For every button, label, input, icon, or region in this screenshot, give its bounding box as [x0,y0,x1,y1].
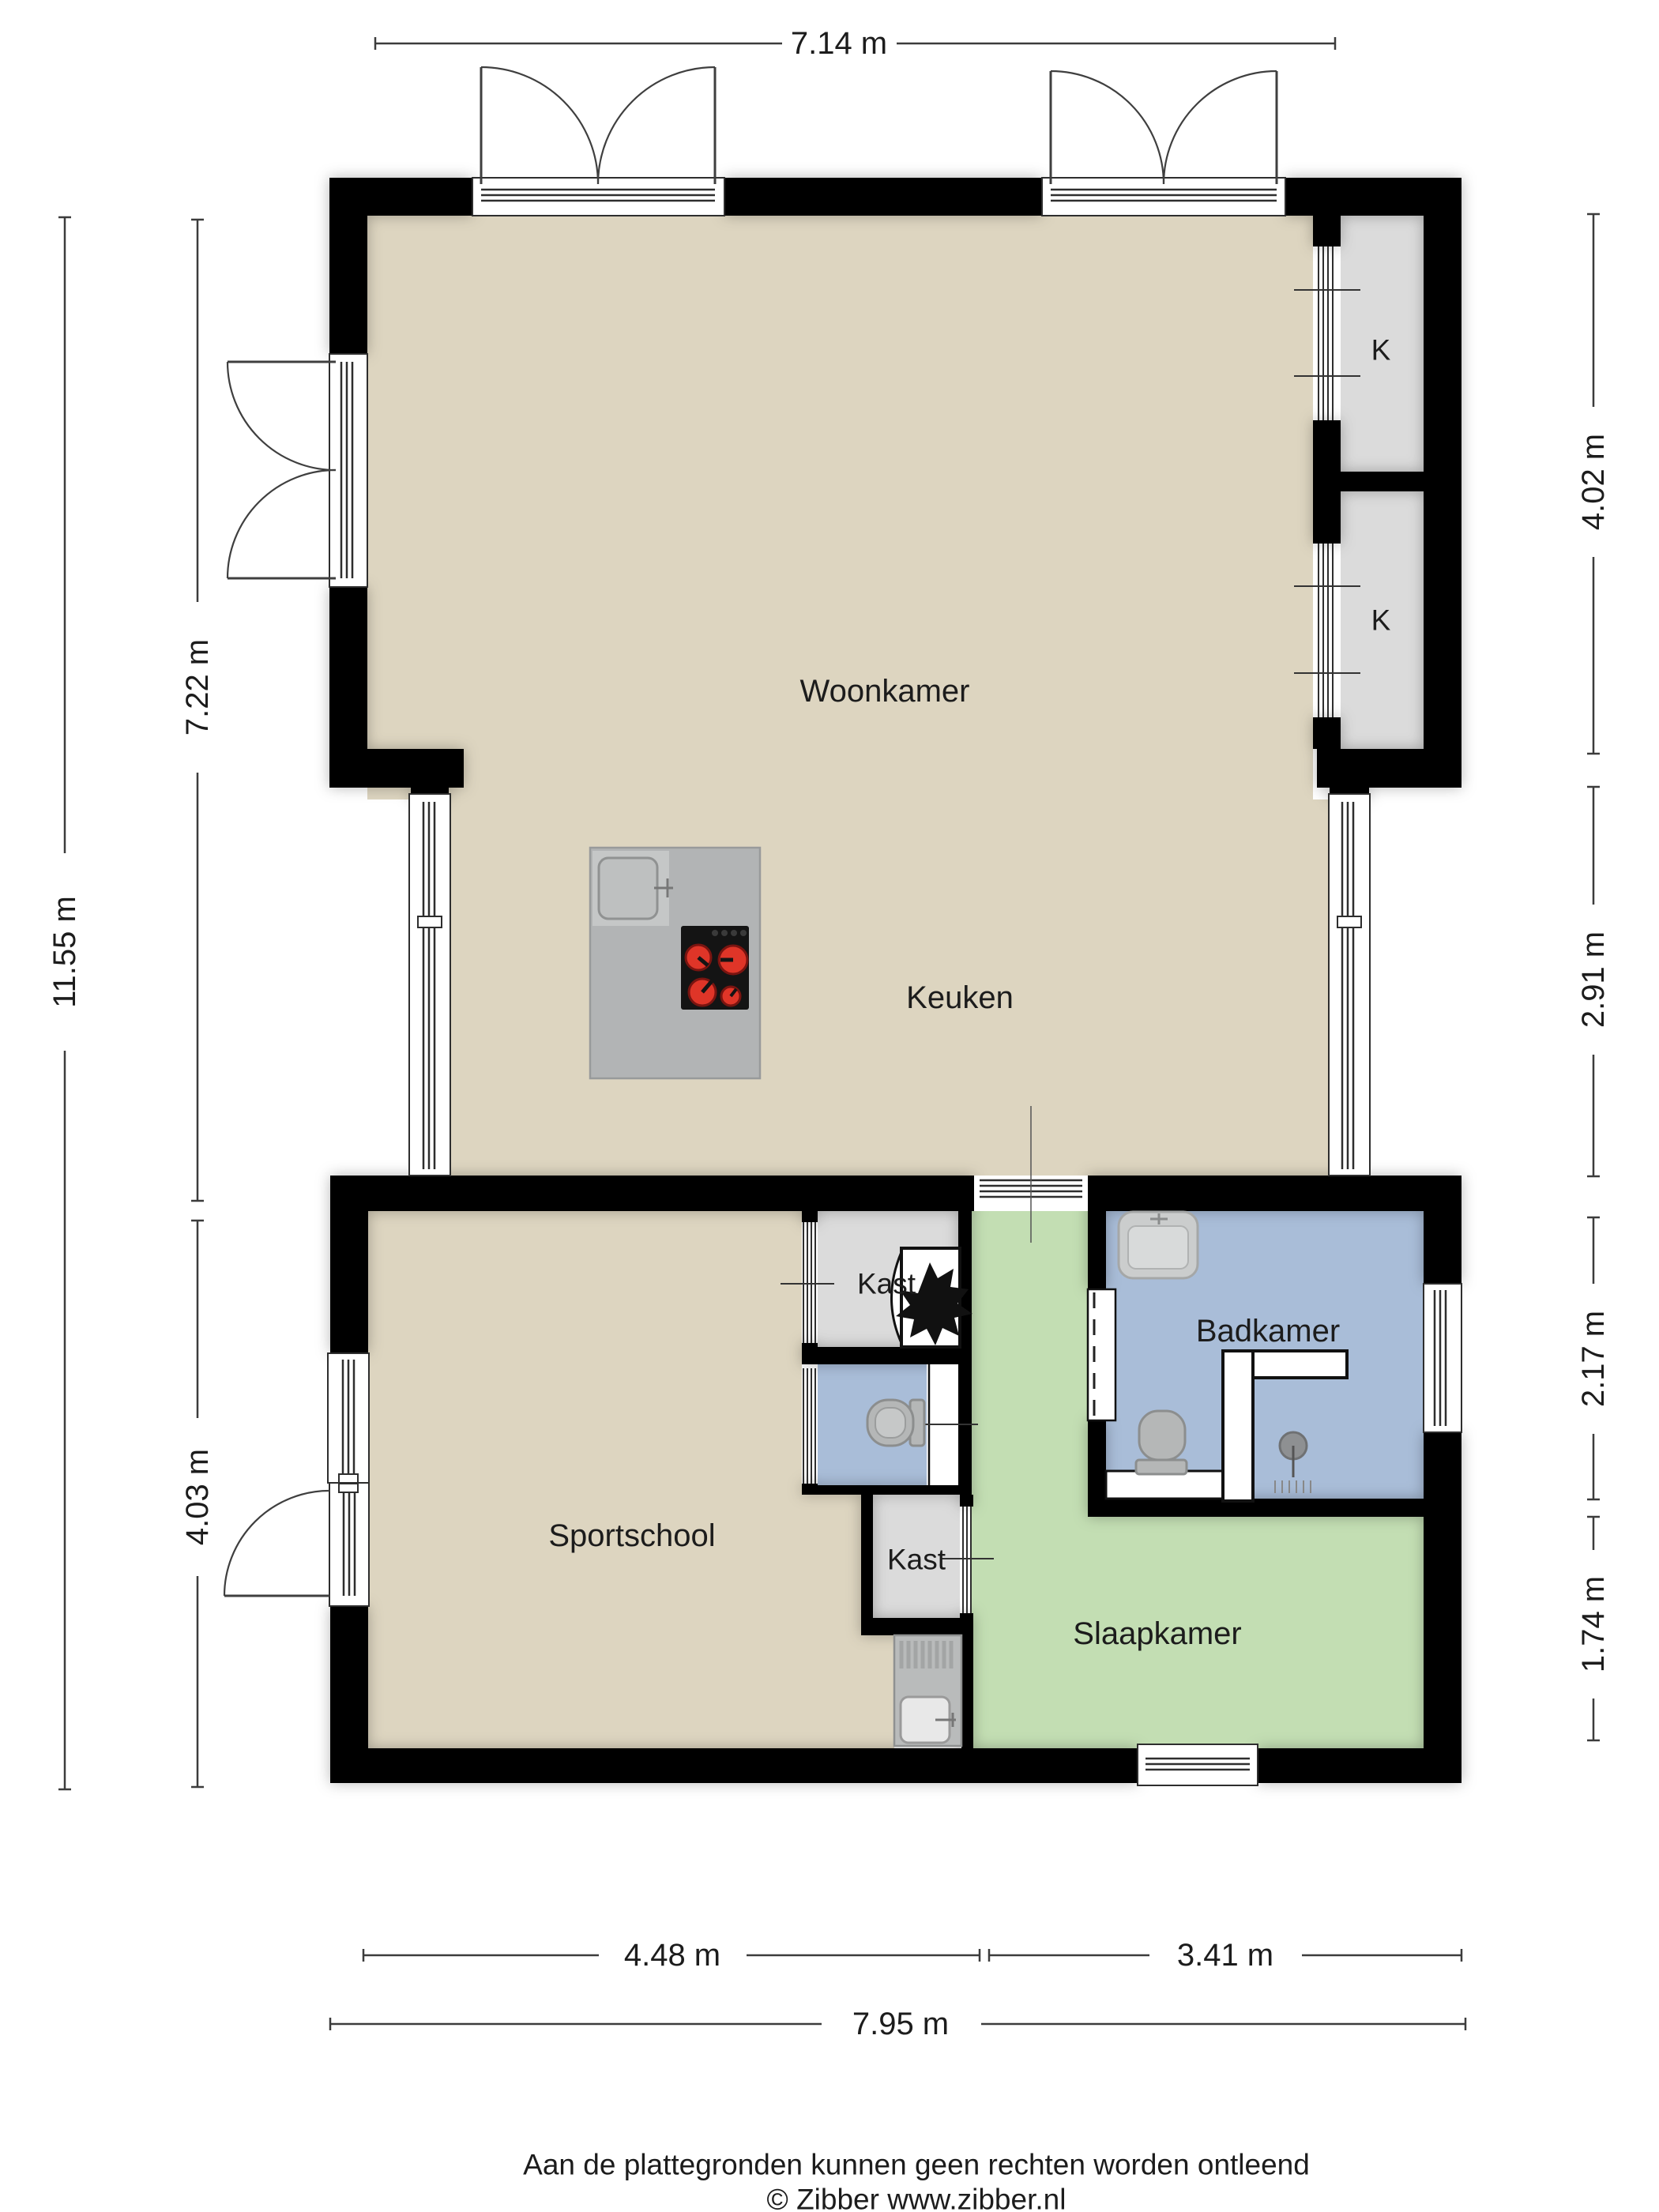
french-door-left [228,354,367,587]
french-door-top-right [1042,71,1285,216]
sink-cabinet [894,1635,961,1746]
dim-left-lower: 4.03 m [180,1221,215,1787]
dim-left-upper: 7.22 m [180,220,215,1201]
keuken-floor [450,799,1329,1176]
sportschool-floor [368,1211,802,1748]
dim-right-bath: 2.17 m [1576,1217,1611,1499]
sportschool-door [224,1483,369,1606]
room-label-badkamer: Badkamer [1196,1314,1340,1349]
bathroom-toilet [1136,1411,1187,1474]
hallway-floor [972,1211,1088,1517]
footer: Aan de plattegronden kunnen geen rechten… [523,2149,1310,2212]
dim-left-total: 11.55 m [47,217,82,1789]
toilet-room-door [803,1368,815,1484]
svg-text:3.41 m: 3.41 m [1177,1938,1273,1973]
dim-bottom-left: 4.48 m [363,1938,980,1973]
dim-top: 7.14 m [375,26,1335,61]
toilet-fixture [867,1400,924,1446]
room-label-k2: K [1371,604,1391,637]
dim-bottom-total: 7.95 m [330,2007,1465,2041]
room-label-sportschool: Sportschool [548,1518,715,1553]
room-label-keuken: Keuken [906,980,1014,1015]
svg-text:7.95 m: 7.95 m [852,2007,949,2041]
room-label-slaapkamer: Slaapkamer [1073,1616,1241,1651]
svg-text:7.22 m: 7.22 m [180,639,215,735]
cooktop [681,926,749,1010]
keuken-window-right [1329,794,1370,1176]
badkamer-sliding-door [1088,1289,1115,1420]
floorplan: Woonkamer Keuken Sportschool Badkamer Sl… [0,0,1659,2212]
svg-text:7.14 m: 7.14 m [791,26,887,61]
floors [367,216,1424,1748]
dim-bottom-right: 3.41 m [989,1938,1461,1973]
island-sink [599,858,657,919]
dim-right-mid: 2.91 m [1576,787,1611,1176]
sportschool-window [328,1353,369,1483]
room-label-kast-upper: Kast [857,1268,916,1300]
svg-text:4.02 m: 4.02 m [1576,434,1611,530]
footer-disclaimer: Aan de plattegronden kunnen geen rechten… [523,2149,1310,2181]
room-label-kast-lower: Kast [887,1544,946,1576]
french-door-top-left [472,67,724,216]
dim-right-upper: 4.02 m [1576,214,1611,754]
svg-text:2.91 m: 2.91 m [1576,931,1611,1028]
badkamer-window [1424,1284,1461,1432]
bathroom-sink [1119,1212,1198,1278]
svg-text:11.55 m: 11.55 m [47,896,82,1008]
footer-copyright: © Zibber www.zibber.nl [767,2184,1066,2212]
svg-text:2.17 m: 2.17 m [1576,1311,1611,1407]
room-label-woonkamer: Woonkamer [800,674,970,709]
slaapkamer-window [1138,1744,1258,1785]
svg-text:4.48 m: 4.48 m [624,1938,720,1973]
room-label-k1: K [1371,334,1391,367]
dim-right-bottom: 1.74 m [1576,1517,1611,1740]
kitchen-island [590,848,760,1078]
keuken-window-left [409,794,450,1176]
woonkamer-floor [367,216,1313,799]
svg-text:1.74 m: 1.74 m [1576,1576,1611,1672]
svg-text:4.03 m: 4.03 m [180,1449,215,1545]
